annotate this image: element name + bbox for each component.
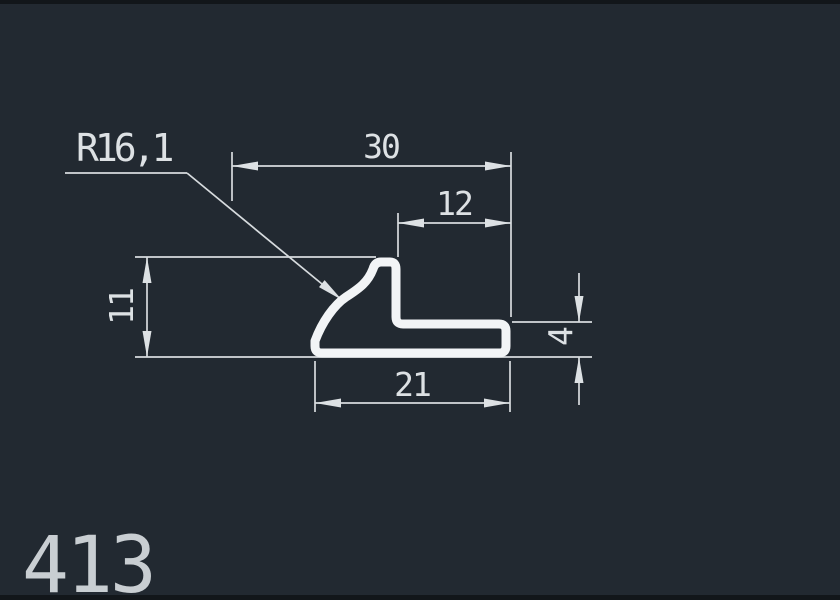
dimension-value: 11 xyxy=(102,289,141,325)
radius-value: R16,1 xyxy=(76,126,173,170)
dimension-value: 4 xyxy=(541,327,580,346)
dimension-value: 30 xyxy=(363,127,399,166)
dimension-value: 12 xyxy=(436,184,472,223)
top-frame-edge xyxy=(0,0,840,4)
dimension-value: 21 xyxy=(394,365,430,404)
drawing-canvas[interactable]: 30 12 11 4 xyxy=(0,0,840,600)
part-number: 413 xyxy=(22,521,154,600)
cad-viewport: 30 12 11 4 xyxy=(0,0,840,600)
